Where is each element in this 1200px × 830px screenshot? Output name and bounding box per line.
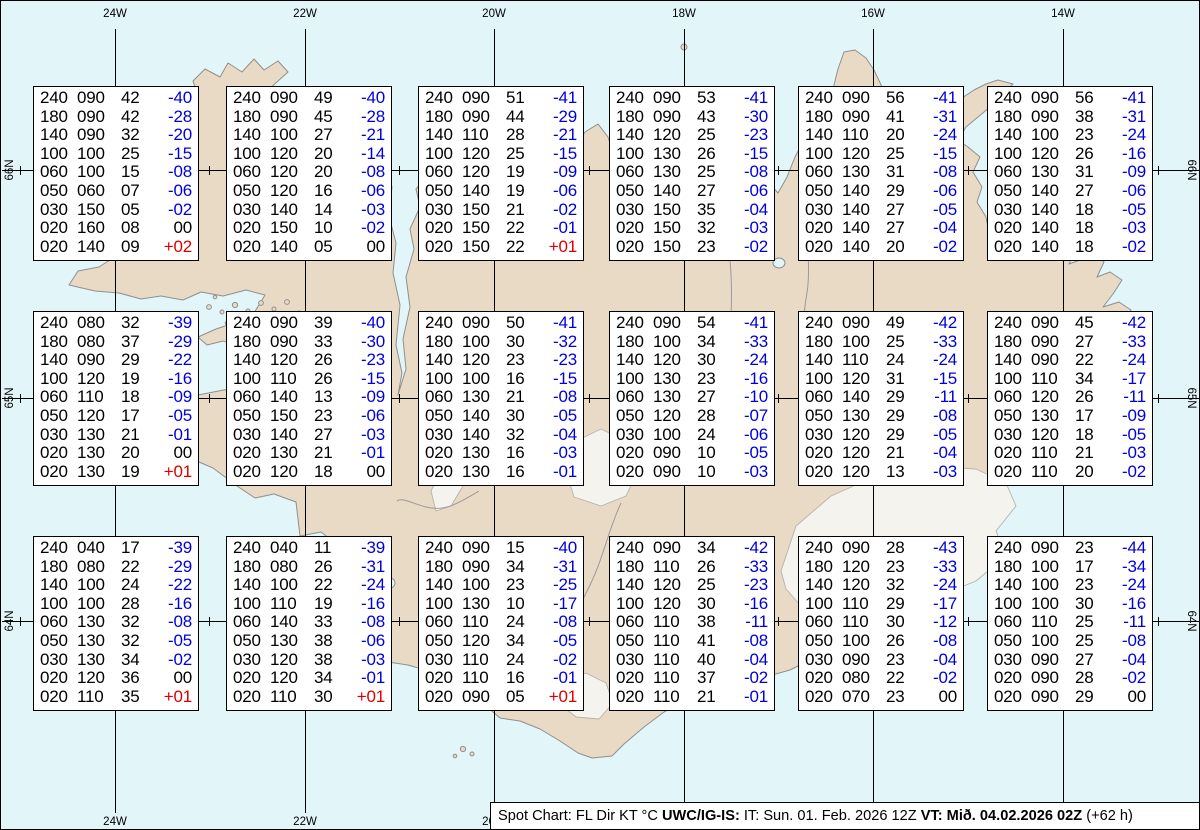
fl-value: 020 <box>233 238 270 257</box>
fl-value: 140 <box>994 576 1031 595</box>
spot-row: 03014032-04 <box>425 426 577 445</box>
dir-value: 130 <box>77 651 119 670</box>
kt-value: 21 <box>119 426 149 445</box>
kt-value: 22 <box>504 219 534 238</box>
spot-row: 24009039-40 <box>233 314 385 333</box>
fl-value: 060 <box>994 163 1031 182</box>
kt-value: 07 <box>119 182 149 201</box>
temp-value: -24 <box>914 351 957 370</box>
fl-value: 060 <box>40 613 77 632</box>
dir-value: 090 <box>270 314 312 333</box>
fl-value: 020 <box>616 219 653 238</box>
dir-value: 140 <box>842 388 884 407</box>
status-segment: Spot Chart: FL Dir KT °C <box>498 808 662 824</box>
status-bar: Spot Chart: FL Dir KT °C UWC/IG-IS: IT: … <box>490 802 1199 829</box>
fl-value: 020 <box>994 669 1031 688</box>
kt-value: 16 <box>504 444 534 463</box>
kt-value: 22 <box>1073 351 1103 370</box>
dir-value: 130 <box>462 444 504 463</box>
dir-value: 120 <box>77 407 119 426</box>
temp-value: -05 <box>534 632 577 651</box>
kt-value: 05 <box>312 238 342 257</box>
kt-value: 25 <box>1073 613 1103 632</box>
spot-row: 06012019-09 <box>425 163 577 182</box>
dir-value: 090 <box>1031 651 1073 670</box>
spot-row: 02014020-02 <box>805 238 957 257</box>
kt-value: 25 <box>695 576 725 595</box>
temp-value: -41 <box>1103 89 1146 108</box>
kt-value: 23 <box>1073 576 1103 595</box>
spot-row: 05010025-08 <box>994 632 1146 651</box>
temp-value: -05 <box>149 407 192 426</box>
kt-value: 26 <box>695 145 725 164</box>
fl-value: 140 <box>805 576 842 595</box>
temp-value: -17 <box>1103 370 1146 389</box>
spot-row: 06013031-09 <box>994 163 1146 182</box>
kt-value: 21 <box>504 201 534 220</box>
dir-value: 090 <box>462 688 504 707</box>
dir-value: 140 <box>842 238 884 257</box>
dir-value: 110 <box>462 651 504 670</box>
temp-value: -08 <box>342 613 385 632</box>
kt-value: 10 <box>695 463 725 482</box>
kt-value: 31 <box>884 163 914 182</box>
spot-row: 02014009+02 <box>40 238 192 257</box>
fl-value: 240 <box>994 539 1031 558</box>
spot-row: 02014027-04 <box>805 219 957 238</box>
fl-value: 030 <box>994 201 1031 220</box>
spot-row: 14010022-24 <box>233 576 385 595</box>
kt-value: 37 <box>119 333 149 352</box>
dir-value: 100 <box>77 145 119 164</box>
temp-value: -43 <box>914 539 957 558</box>
temp-value: -39 <box>149 314 192 333</box>
dir-value: 110 <box>1031 613 1073 632</box>
fl-value: 240 <box>994 314 1031 333</box>
temp-value: -21 <box>534 126 577 145</box>
fl-value: 180 <box>425 333 462 352</box>
dir-value: 120 <box>842 558 884 577</box>
dir-value: 120 <box>270 182 312 201</box>
kt-value: 15 <box>504 539 534 558</box>
dir-value: 090 <box>842 314 884 333</box>
spot-row: 10012025-15 <box>425 145 577 164</box>
spot-row: 06011024-08 <box>425 613 577 632</box>
kt-value: 18 <box>1073 219 1103 238</box>
temp-value: -06 <box>342 182 385 201</box>
temp-value: -31 <box>1103 108 1146 127</box>
spot-row: 05013032-05 <box>40 632 192 651</box>
temp-value: -05 <box>725 444 768 463</box>
spot-row: 02015023-02 <box>616 238 768 257</box>
kt-value: 17 <box>1073 407 1103 426</box>
kt-value: 20 <box>884 238 914 257</box>
fl-value: 240 <box>233 539 270 558</box>
fl-value: 020 <box>40 463 77 482</box>
kt-value: 23 <box>1073 539 1103 558</box>
spot-row: 03010024-06 <box>616 426 768 445</box>
fl-value: 030 <box>40 426 77 445</box>
dir-value: 060 <box>77 182 119 201</box>
dir-value: 150 <box>653 219 695 238</box>
fl-value: 100 <box>40 595 77 614</box>
dir-value: 130 <box>653 145 695 164</box>
dir-value: 150 <box>653 238 695 257</box>
spot-row: 02009010-05 <box>616 444 768 463</box>
kt-value: 56 <box>1073 89 1103 108</box>
spot-row: 06011030-12 <box>805 613 957 632</box>
fl-value: 240 <box>425 539 462 558</box>
fl-value: 140 <box>425 351 462 370</box>
temp-value: -41 <box>725 89 768 108</box>
temp-value: -01 <box>534 669 577 688</box>
dir-value: 110 <box>653 688 695 707</box>
temp-value: -24 <box>725 351 768 370</box>
kt-value: 31 <box>884 370 914 389</box>
dir-value: 130 <box>842 407 884 426</box>
fl-value: 240 <box>805 89 842 108</box>
spot-row: 05012028-07 <box>616 407 768 426</box>
dir-value: 090 <box>270 333 312 352</box>
fl-value: 050 <box>616 182 653 201</box>
spot-row: 05011041-08 <box>616 632 768 651</box>
spot-row: 10012019-16 <box>40 370 192 389</box>
fl-value: 060 <box>40 163 77 182</box>
dir-value: 130 <box>77 426 119 445</box>
spot-row: 05014027-06 <box>994 182 1146 201</box>
kt-value: 29 <box>1073 688 1103 707</box>
spot-row: 06013031-08 <box>805 163 957 182</box>
status-segment: VT: Mið. 04.02.2026 02Z <box>921 808 1082 824</box>
kt-value: 23 <box>695 238 725 257</box>
kt-value: 31 <box>1073 163 1103 182</box>
spot-table: 24009034-4218011026-3314012025-231001203… <box>609 536 775 711</box>
kt-value: 24 <box>119 576 149 595</box>
fl-value: 050 <box>805 182 842 201</box>
spot-row: 02012034-01 <box>233 669 385 688</box>
spot-row: 02011016-01 <box>425 669 577 688</box>
spot-table: 24004011-3918008026-3114010022-241001101… <box>226 536 392 711</box>
kt-value: 36 <box>119 669 149 688</box>
kt-value: 19 <box>504 182 534 201</box>
temp-value: -04 <box>725 651 768 670</box>
spot-row: 10011034-17 <box>994 370 1146 389</box>
fl-value: 020 <box>233 688 270 707</box>
temp-value: -11 <box>725 613 768 632</box>
fl-value: 060 <box>805 388 842 407</box>
kt-value: 05 <box>504 688 534 707</box>
fl-value: 020 <box>425 238 462 257</box>
kt-value: 28 <box>695 407 725 426</box>
spot-row: 24009056-41 <box>805 89 957 108</box>
kt-value: 18 <box>1073 201 1103 220</box>
spot-row: 10012020-14 <box>233 145 385 164</box>
dir-value: 090 <box>462 89 504 108</box>
fl-value: 020 <box>40 219 77 238</box>
fl-value: 180 <box>40 333 77 352</box>
spot-row: 24009034-42 <box>616 539 768 558</box>
fl-value: 020 <box>40 669 77 688</box>
fl-value: 020 <box>616 238 653 257</box>
temp-value: -06 <box>534 182 577 201</box>
dir-value: 110 <box>653 669 695 688</box>
temp-value: -29 <box>149 558 192 577</box>
dir-value: 120 <box>270 651 312 670</box>
dir-value: 100 <box>842 333 884 352</box>
fl-value: 180 <box>805 333 842 352</box>
kt-value: 27 <box>312 126 342 145</box>
spot-row: 05014027-06 <box>616 182 768 201</box>
temp-value: -03 <box>725 219 768 238</box>
fl-value: 180 <box>40 108 77 127</box>
dir-value: 080 <box>77 558 119 577</box>
spot-row: 02013016-03 <box>425 444 577 463</box>
kt-value: 37 <box>695 669 725 688</box>
fl-value: 030 <box>616 426 653 445</box>
kt-value: 26 <box>695 558 725 577</box>
fl-value: 240 <box>233 89 270 108</box>
dir-value: 090 <box>462 314 504 333</box>
spot-row: 02008022-02 <box>805 669 957 688</box>
kt-value: 28 <box>884 539 914 558</box>
spot-table: 24009051-4118009044-2914011028-211001202… <box>418 86 584 261</box>
temp-value: -40 <box>342 314 385 333</box>
dir-value: 080 <box>77 314 119 333</box>
kt-value: 38 <box>695 613 725 632</box>
temp-value: -28 <box>149 108 192 127</box>
spot-row: 02013016-01 <box>425 463 577 482</box>
dir-value: 150 <box>462 219 504 238</box>
fl-value: 050 <box>805 407 842 426</box>
fl-value: 100 <box>233 370 270 389</box>
fl-value: 060 <box>805 163 842 182</box>
kt-value: 32 <box>119 613 149 632</box>
dir-value: 090 <box>77 89 119 108</box>
dir-value: 120 <box>653 126 695 145</box>
dir-value: 100 <box>1031 632 1073 651</box>
spot-row: 05006007-06 <box>40 182 192 201</box>
dir-value: 130 <box>653 163 695 182</box>
kt-value: 38 <box>1073 108 1103 127</box>
temp-value: -08 <box>534 613 577 632</box>
temp-value: -04 <box>534 426 577 445</box>
dir-value: 120 <box>653 351 695 370</box>
kt-value: 26 <box>1073 145 1103 164</box>
spot-table: 24009053-4118009043-3014012025-231001302… <box>609 86 775 261</box>
dir-value: 110 <box>653 558 695 577</box>
dir-value: 110 <box>77 388 119 407</box>
temp-value: -09 <box>1103 407 1146 426</box>
fl-value: 060 <box>994 388 1031 407</box>
dir-value: 130 <box>77 444 119 463</box>
spot-row: 24009045-42 <box>994 314 1146 333</box>
fl-value: 020 <box>40 444 77 463</box>
temp-value: -24 <box>342 576 385 595</box>
kt-value: 56 <box>884 89 914 108</box>
dir-value: 120 <box>653 407 695 426</box>
spot-row: 18010034-33 <box>616 333 768 352</box>
spot-row: 10011026-15 <box>233 370 385 389</box>
dir-value: 090 <box>653 108 695 127</box>
spot-row: 02011037-02 <box>616 669 768 688</box>
temp-value: -29 <box>149 333 192 352</box>
fl-value: 020 <box>805 669 842 688</box>
dir-value: 090 <box>270 89 312 108</box>
temp-value: -24 <box>1103 576 1146 595</box>
temp-value: -40 <box>149 89 192 108</box>
dir-value: 090 <box>842 108 884 127</box>
dir-value: 130 <box>1031 163 1073 182</box>
spot-row: 18010017-34 <box>994 558 1146 577</box>
spot-row: 02009010-03 <box>616 463 768 482</box>
spot-row: 24009050-41 <box>425 314 577 333</box>
dir-value: 130 <box>77 613 119 632</box>
dir-value: 120 <box>1031 426 1073 445</box>
spot-row: 14009022-24 <box>994 351 1146 370</box>
kt-value: 18 <box>1073 238 1103 257</box>
kt-value: 16 <box>504 669 534 688</box>
dir-value: 150 <box>270 407 312 426</box>
spot-row: 24004017-39 <box>40 539 192 558</box>
fl-value: 050 <box>40 182 77 201</box>
temp-value: +01 <box>149 463 192 482</box>
fl-value: 020 <box>994 688 1031 707</box>
spot-row: 06011018-09 <box>40 388 192 407</box>
temp-value: -02 <box>1103 669 1146 688</box>
spot-row: 24009049-42 <box>805 314 957 333</box>
temp-value: -23 <box>725 576 768 595</box>
temp-value: -34 <box>1103 558 1146 577</box>
dir-value: 130 <box>77 463 119 482</box>
spot-row: 02009028-02 <box>994 669 1146 688</box>
spot-row: 14012026-23 <box>233 351 385 370</box>
temp-value: -11 <box>914 388 957 407</box>
dir-value: 140 <box>270 426 312 445</box>
spot-row: 24009042-40 <box>40 89 192 108</box>
dir-value: 090 <box>1031 669 1073 688</box>
kt-value: 29 <box>884 182 914 201</box>
spot-row: 18011026-33 <box>616 558 768 577</box>
dir-value: 100 <box>1031 558 1073 577</box>
kt-value: 32 <box>119 314 149 333</box>
fl-value: 180 <box>616 333 653 352</box>
temp-value: -31 <box>342 558 385 577</box>
spot-row: 24009056-41 <box>994 89 1146 108</box>
dir-value: 090 <box>77 126 119 145</box>
kt-value: 13 <box>312 388 342 407</box>
dir-value: 100 <box>77 163 119 182</box>
kt-value: 23 <box>884 688 914 707</box>
fl-value: 060 <box>616 613 653 632</box>
fl-value: 180 <box>425 558 462 577</box>
temp-value: -30 <box>342 333 385 352</box>
dir-value: 110 <box>842 595 884 614</box>
temp-value: -04 <box>914 444 957 463</box>
fl-value: 060 <box>616 388 653 407</box>
kt-value: 42 <box>119 108 149 127</box>
dir-value: 150 <box>462 238 504 257</box>
fl-value: 050 <box>616 632 653 651</box>
fl-value: 020 <box>805 238 842 257</box>
kt-value: 45 <box>1073 314 1103 333</box>
fl-value: 030 <box>233 201 270 220</box>
fl-value: 100 <box>805 370 842 389</box>
kt-value: 22 <box>312 576 342 595</box>
spot-row: 14012032-24 <box>805 576 957 595</box>
dir-value: 090 <box>462 539 504 558</box>
spot-row: 02012013-03 <box>805 463 957 482</box>
temp-value: -02 <box>534 651 577 670</box>
fl-value: 020 <box>616 463 653 482</box>
fl-value: 020 <box>994 463 1031 482</box>
dir-value: 120 <box>462 632 504 651</box>
kt-value: 28 <box>504 126 534 145</box>
fl-value: 060 <box>805 613 842 632</box>
temp-value: +01 <box>534 688 577 707</box>
fl-value: 020 <box>994 444 1031 463</box>
dir-value: 120 <box>270 351 312 370</box>
dir-value: 110 <box>1031 444 1073 463</box>
kt-value: 43 <box>695 108 725 127</box>
fl-value: 050 <box>994 182 1031 201</box>
fl-value: 030 <box>233 651 270 670</box>
temp-value: -04 <box>1103 651 1146 670</box>
spot-table: 24008032-3918008037-2914009029-221001201… <box>33 311 199 486</box>
fl-value: 240 <box>425 314 462 333</box>
spot-row: 06014033-08 <box>233 613 385 632</box>
dir-value: 070 <box>842 688 884 707</box>
spot-row: 03014027-03 <box>233 426 385 445</box>
dir-value: 130 <box>77 632 119 651</box>
temp-value: -15 <box>725 145 768 164</box>
kt-value: 24 <box>504 613 534 632</box>
dir-value: 140 <box>270 613 312 632</box>
fl-value: 180 <box>233 333 270 352</box>
spot-row: 24009051-41 <box>425 89 577 108</box>
temp-value: -25 <box>534 576 577 595</box>
fl-value: 020 <box>425 669 462 688</box>
temp-value: -33 <box>1103 333 1146 352</box>
spot-row: 05012017-05 <box>40 407 192 426</box>
kt-value: 20 <box>884 126 914 145</box>
spot-row: 02015022+01 <box>425 238 577 257</box>
fl-value: 020 <box>805 219 842 238</box>
spot-row: 02011030+01 <box>233 688 385 707</box>
dir-value: 110 <box>270 688 312 707</box>
fl-value: 140 <box>233 351 270 370</box>
temp-value: -15 <box>914 145 957 164</box>
dir-value: 100 <box>270 576 312 595</box>
temp-value: -42 <box>725 539 768 558</box>
dir-value: 150 <box>462 201 504 220</box>
dir-value: 110 <box>1031 463 1073 482</box>
kt-value: 38 <box>312 632 342 651</box>
kt-value: 44 <box>504 108 534 127</box>
temp-value: -33 <box>725 333 768 352</box>
dir-value: 090 <box>653 463 695 482</box>
temp-value: -03 <box>725 463 768 482</box>
kt-value: 29 <box>884 388 914 407</box>
dir-value: 100 <box>77 595 119 614</box>
dir-value: 120 <box>270 163 312 182</box>
temp-value: -08 <box>725 632 768 651</box>
dir-value: 110 <box>462 669 504 688</box>
temp-value: -03 <box>342 201 385 220</box>
spot-chart-canvas: 24W24W22W22W20W20W18W18W16W16W14W14W66N6… <box>0 0 1200 830</box>
spot-row: 02013019+01 <box>40 463 192 482</box>
dir-value: 140 <box>842 201 884 220</box>
dir-value: 110 <box>653 632 695 651</box>
